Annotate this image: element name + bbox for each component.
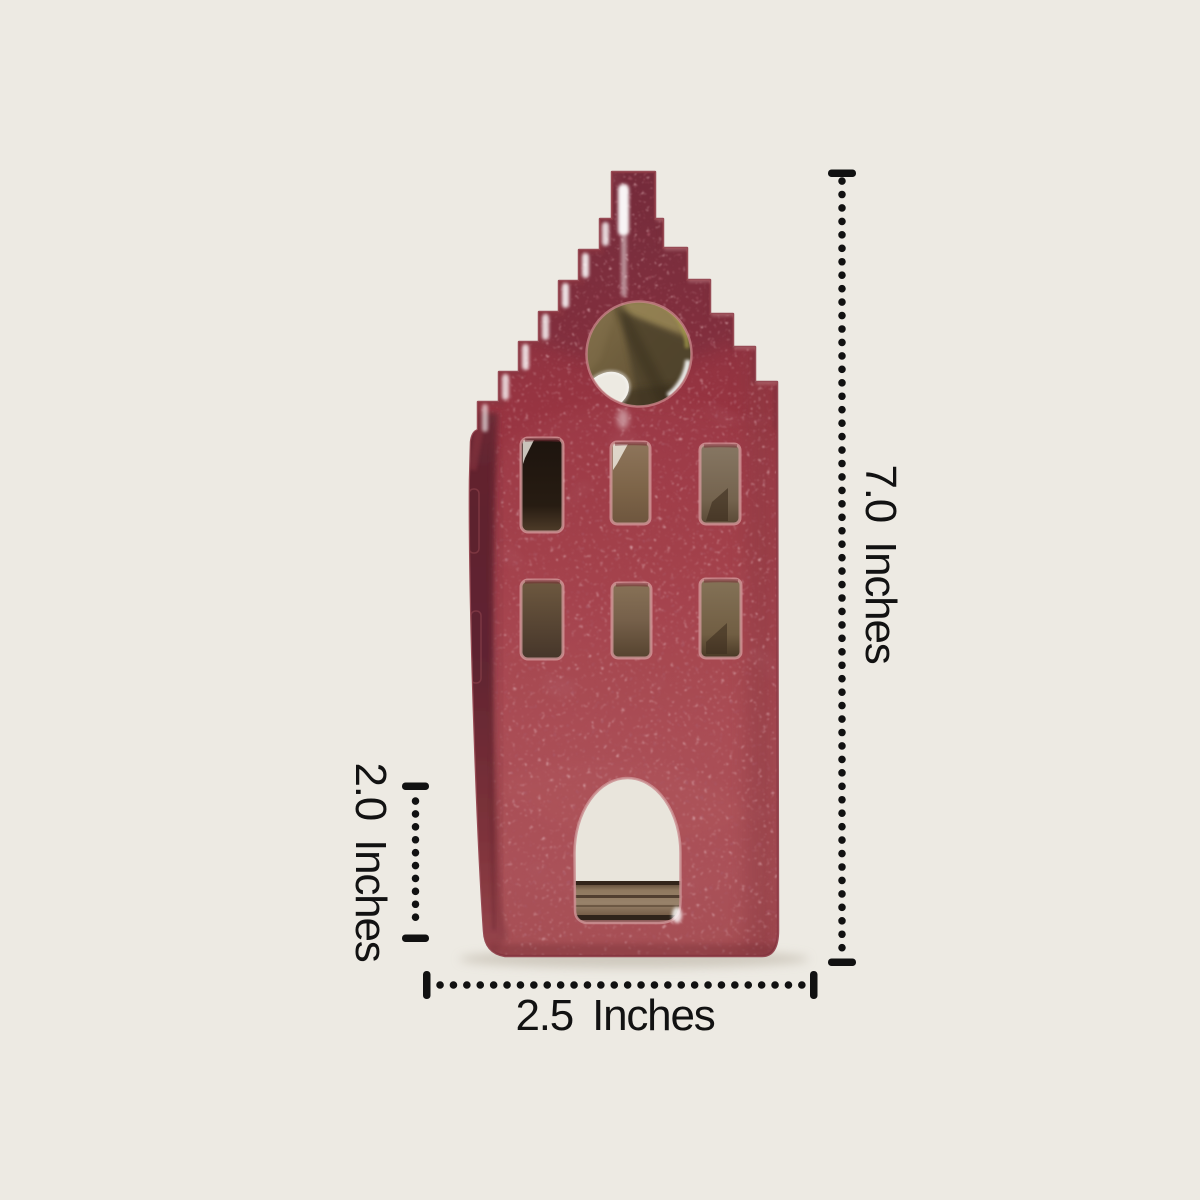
- svg-text:2.0 Inches: 2.0 Inches: [346, 762, 395, 961]
- svg-text:7.0 Inches: 7.0 Inches: [856, 464, 905, 663]
- svg-text:2.5 Inches: 2.5 Inches: [515, 991, 714, 1040]
